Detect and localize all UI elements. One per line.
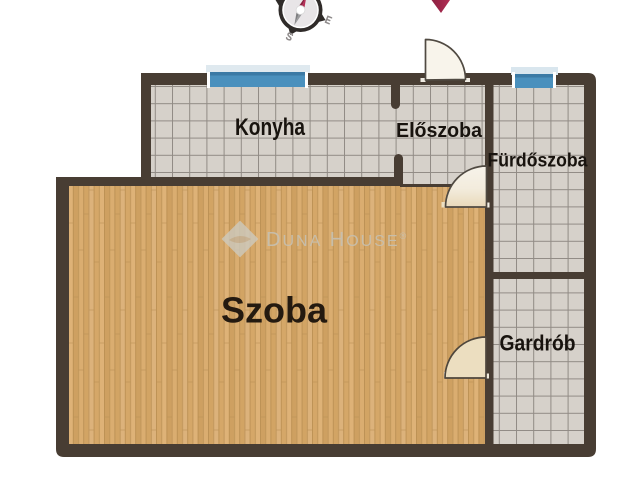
svg-text:Gardrób: Gardrób — [500, 331, 576, 356]
svg-text:Konyha: Konyha — [235, 114, 306, 141]
svg-text:Előszoba: Előszoba — [396, 119, 483, 142]
svg-text:DUNA HOUSE®: DUNA HOUSE® — [266, 229, 408, 251]
svg-text:Fürdőszoba: Fürdőszoba — [488, 151, 588, 172]
svg-text:Szoba: Szoba — [221, 290, 328, 331]
